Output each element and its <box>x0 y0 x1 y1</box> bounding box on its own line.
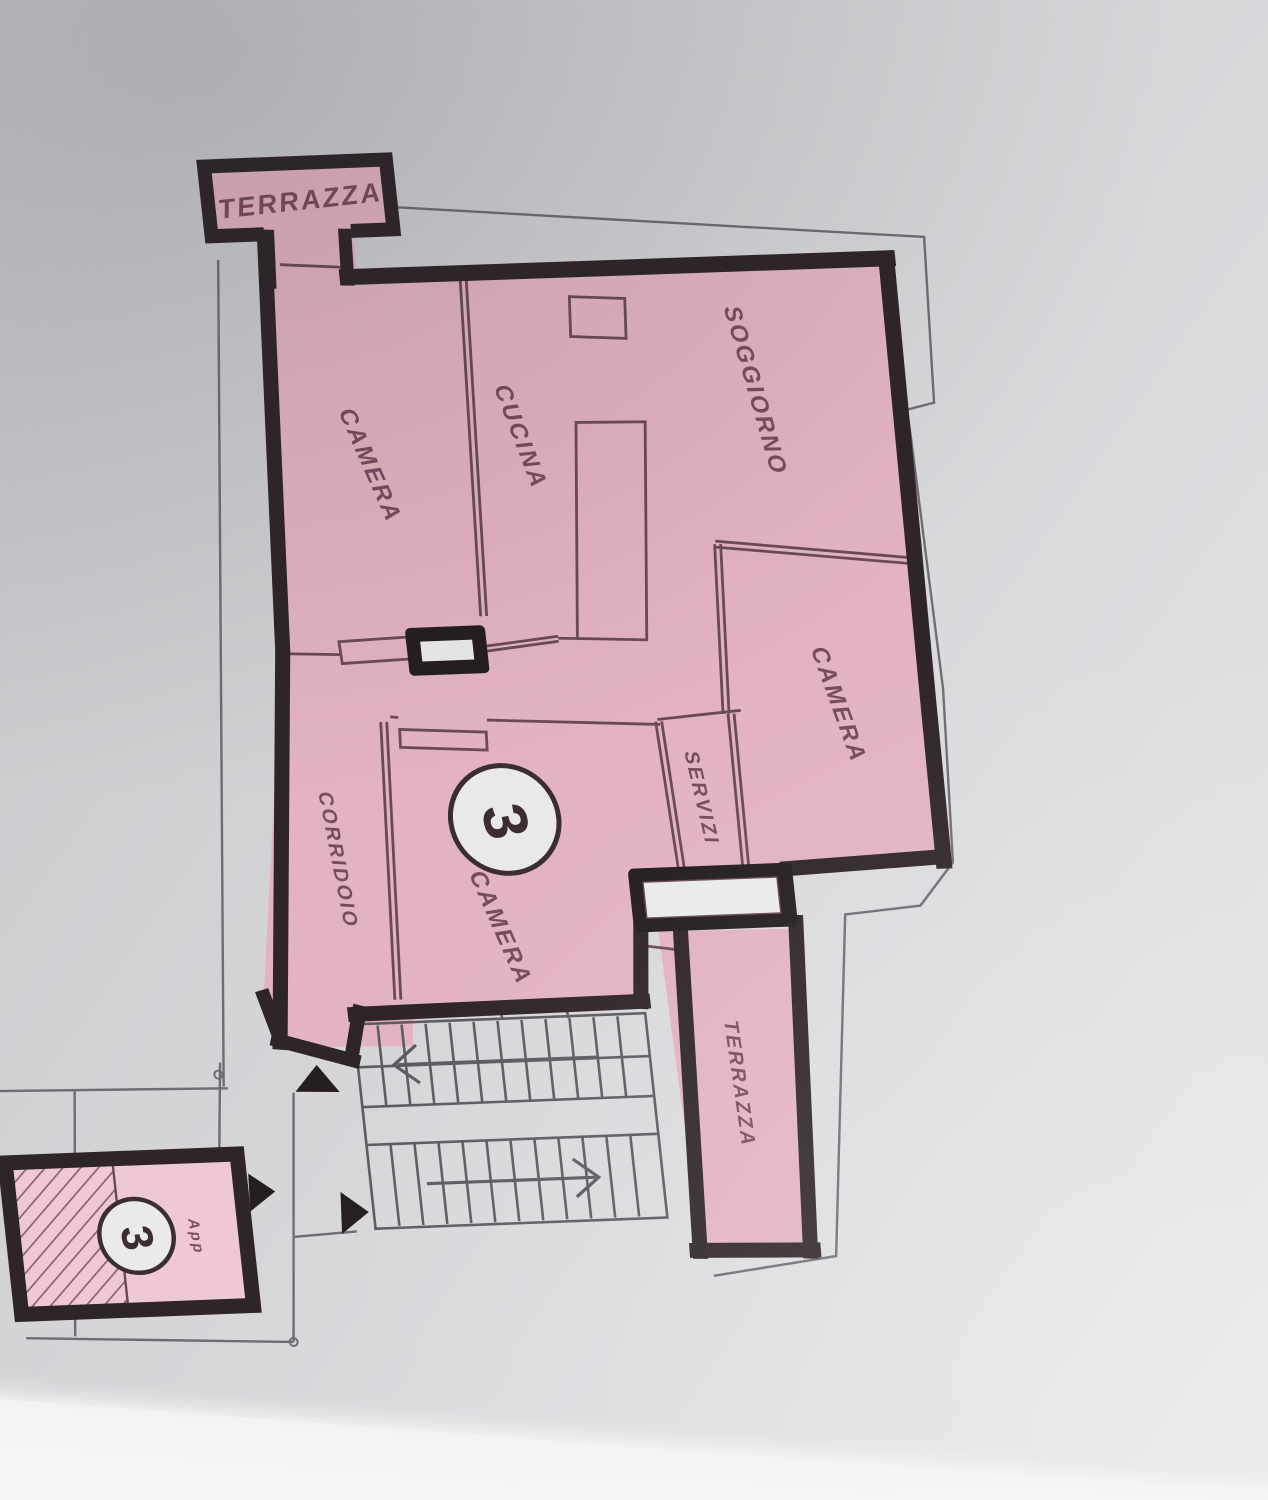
entrance-door-icon <box>293 1064 340 1094</box>
floor-plan-drawing: 3 3 App TERRAZZA CAMERA CUCINA SOGGIORNO… <box>0 100 1088 1377</box>
photographed-floor-plan: 3 3 App TERRAZZA CAMERA CUCINA SOGGIORNO… <box>0 0 1268 1500</box>
shaft-box <box>405 625 490 676</box>
landing-door-icon <box>246 1173 277 1212</box>
landing-unit-block: 3 App <box>5 1154 253 1314</box>
room-fills <box>173 141 993 1266</box>
paper-edge <box>0 1396 1268 1500</box>
terrace-door-slot <box>627 862 798 932</box>
door-swing-icons <box>235 1063 371 1237</box>
stairs-door-icon <box>337 1191 371 1234</box>
stair-direction-arrow-up <box>392 1038 600 1084</box>
floor-plan: 3 3 App TERRAZZA CAMERA CUCINA SOGGIORNO… <box>0 100 1088 1377</box>
